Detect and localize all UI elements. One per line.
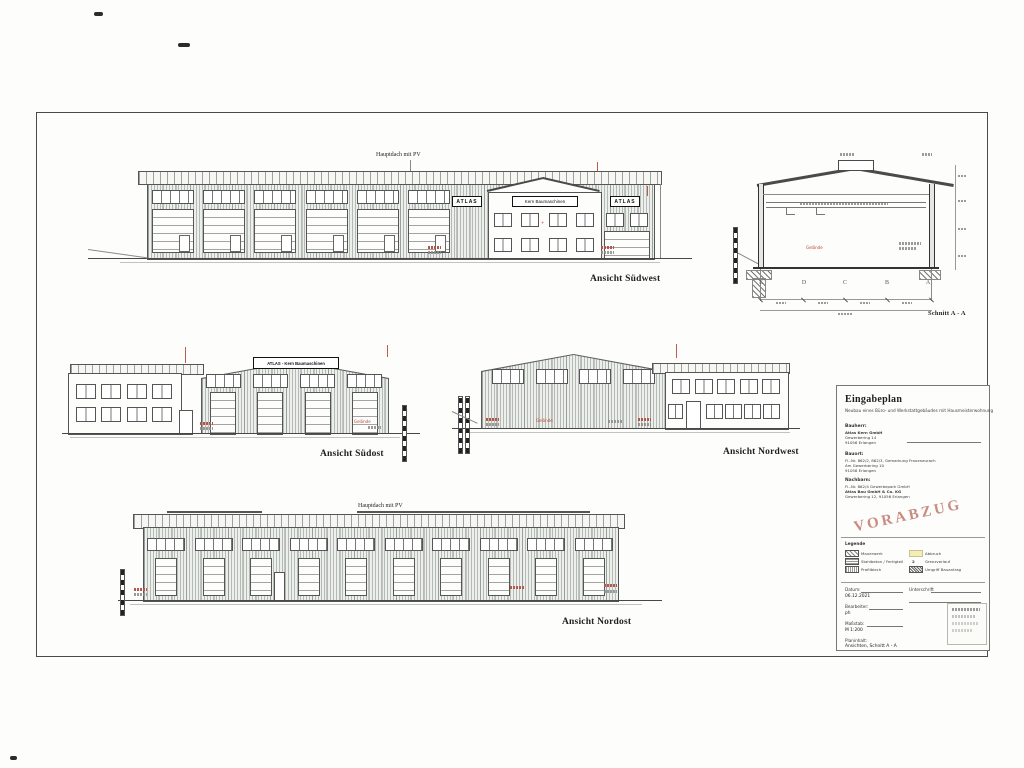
window	[127, 384, 147, 399]
ground-line-2	[470, 432, 790, 433]
hall-bay	[574, 538, 614, 596]
window	[152, 384, 172, 399]
caption-nordwest: Ansicht Nordwest	[723, 447, 799, 457]
caption-suedost: Ansicht Südost	[320, 449, 384, 459]
red-dim	[185, 347, 186, 363]
window	[706, 404, 723, 419]
ground-line	[452, 428, 800, 429]
window-band	[623, 369, 655, 384]
window-band	[432, 538, 470, 551]
legend-symbol: 2	[912, 559, 915, 564]
nachbarn-line: Gewerbering 12, 91056 Erlangen	[845, 494, 910, 499]
window-band	[242, 538, 280, 551]
window	[576, 213, 594, 227]
bauort-line: 91056 Erlangen	[845, 468, 876, 473]
caption-schnitt: Schnitt A - A	[928, 310, 966, 317]
roller-door	[357, 209, 399, 253]
window	[549, 213, 567, 227]
level-text	[638, 423, 651, 426]
legend-label: Abbruch	[925, 551, 941, 556]
red-dim	[597, 162, 598, 172]
wicket-door	[333, 235, 344, 252]
planinhalt-value: Ansichten, Schnitt A - A	[845, 644, 897, 649]
wicket-door	[281, 235, 292, 252]
dim-text	[818, 302, 828, 304]
massstab-value: M 1:200	[845, 628, 863, 633]
window	[668, 404, 683, 419]
wicket-door	[179, 235, 190, 252]
window	[740, 379, 758, 394]
roller-door	[210, 392, 236, 435]
hall-bay	[289, 538, 329, 596]
legend-label: Profilblech	[861, 567, 881, 572]
window	[717, 379, 735, 394]
level-text	[486, 423, 499, 426]
hall-bay	[306, 190, 348, 253]
window-band	[203, 190, 245, 204]
roof-band	[138, 171, 662, 185]
hall-bay	[384, 538, 424, 596]
red-level-mark	[638, 418, 651, 421]
window	[744, 404, 761, 419]
legend-swatch-mauerwerk	[845, 550, 859, 557]
red-level-mark	[428, 246, 441, 249]
level-text	[899, 247, 917, 250]
dim-text	[838, 313, 852, 315]
nachbarn-label: Nachbarn:	[845, 478, 871, 483]
office-window-row	[76, 384, 172, 399]
level-text	[200, 427, 213, 430]
dim-text	[860, 302, 870, 304]
legend-swatch-stahlbeton	[845, 558, 859, 565]
level-text	[604, 590, 617, 593]
plan-subtitle: Neubau eines Büro- und Werkstattgebäudes…	[845, 408, 993, 413]
grid-letter: A	[922, 280, 934, 286]
pedestrian-door	[274, 572, 285, 602]
bearbeiter-label: Bearbeiter:	[845, 604, 868, 609]
door-row	[206, 392, 382, 435]
bearbeiter-value: ph	[845, 611, 851, 616]
scan-speck	[10, 756, 17, 760]
canopy-post	[660, 184, 661, 258]
legend-label: Grenzverlauf	[925, 559, 950, 564]
wall-left	[758, 184, 764, 268]
window-band	[290, 538, 328, 551]
window-band	[195, 538, 233, 551]
leader-line	[410, 160, 411, 171]
roof-label: Hauptdach mit PV	[358, 503, 403, 509]
window	[763, 404, 780, 419]
boundary-pole	[465, 396, 470, 454]
window	[521, 213, 539, 227]
window-band-row	[492, 369, 655, 384]
office-window-row	[672, 379, 780, 394]
massstab-label: Maßstab:	[845, 621, 864, 626]
level-text	[368, 426, 381, 429]
bauherr-line: 91056 Erlangen	[845, 440, 876, 445]
bay-row	[146, 538, 614, 596]
roller-door	[254, 209, 296, 253]
legend-label: Stahlbeton / Fertigteil	[861, 559, 903, 564]
roller-door	[250, 558, 272, 596]
window-band	[480, 538, 518, 551]
ridge-level	[840, 153, 854, 156]
divider	[841, 537, 985, 538]
caption-suedwest: Ansicht Südwest	[590, 274, 660, 284]
roller-door	[306, 209, 348, 253]
office-wall	[68, 373, 182, 435]
red-level-mark	[604, 584, 617, 587]
pv-strip	[167, 511, 262, 513]
bauherr-label: Bauherr:	[845, 424, 867, 429]
ground-line	[88, 258, 692, 259]
window	[725, 404, 742, 419]
roller-door	[155, 558, 177, 596]
boundary-pole	[733, 227, 738, 284]
roller-door	[305, 392, 331, 435]
window-band	[408, 190, 450, 204]
red-level-mark	[486, 418, 499, 421]
ground-line-2	[70, 437, 400, 438]
window-band	[306, 190, 348, 204]
hall-bay	[152, 190, 194, 253]
entrance-door	[686, 401, 701, 430]
sectional-door	[604, 231, 650, 259]
window-band	[206, 374, 241, 388]
elevation-suedwest: Hauptdach mit PV Kern Baumaschinen + ATL	[0, 0, 46, 28]
window-band	[152, 190, 194, 204]
legend-swatch-abbruch	[909, 550, 923, 557]
boundary-pole	[402, 405, 407, 462]
foundation-hatch	[919, 270, 941, 280]
red-level-mark	[200, 422, 213, 425]
roller-door	[535, 558, 557, 596]
crane-hook	[786, 207, 795, 215]
dim-text	[958, 200, 966, 202]
architect-stamp	[947, 603, 987, 645]
level-text	[899, 242, 921, 245]
wall-right	[929, 184, 935, 268]
roller-door	[257, 392, 283, 435]
wicket-door	[384, 235, 395, 252]
scan-speck	[178, 43, 190, 47]
window	[494, 238, 512, 252]
window	[576, 238, 594, 252]
window	[152, 407, 172, 422]
grid-letter: C	[839, 280, 851, 286]
planinhalt-label: Planinhalt:	[845, 638, 867, 643]
grid-letter: D	[798, 280, 810, 286]
dim-text	[958, 228, 966, 230]
roller-door	[393, 558, 415, 596]
office-window-row	[706, 404, 780, 419]
dim-text	[958, 255, 966, 257]
tie-line	[763, 194, 929, 195]
legend-label: Umgriff Bauantrag	[925, 567, 961, 572]
datum-label: Datum:	[845, 587, 861, 592]
field-line	[867, 626, 903, 627]
wicket-door	[435, 235, 446, 252]
window	[494, 213, 512, 227]
window-band	[253, 374, 288, 388]
dim-text	[958, 175, 966, 177]
hall-bay	[357, 190, 399, 253]
scan-speck	[94, 12, 103, 16]
legend-swatch-umgriff	[909, 566, 923, 573]
level-text	[134, 593, 147, 596]
legend-swatch-profilblech	[845, 566, 859, 573]
hall-bay	[408, 190, 450, 253]
red-dim	[387, 345, 388, 357]
window-band	[536, 369, 568, 384]
level-text	[601, 251, 614, 254]
hall-bay	[203, 190, 245, 253]
office-window-row	[494, 238, 594, 252]
wicket-door	[230, 235, 241, 252]
boundary-pole	[458, 396, 463, 454]
beam-text	[800, 203, 888, 205]
title-block: Eingabeplan Neubau eines Büro- und Werks…	[836, 385, 990, 651]
pv-strip	[357, 511, 590, 513]
ground-line	[62, 433, 420, 434]
eave-level	[922, 153, 932, 156]
window	[521, 238, 539, 252]
floor-slab	[753, 267, 939, 269]
roller-door	[583, 558, 605, 596]
divider	[841, 582, 985, 583]
window-band-row	[206, 374, 382, 388]
plan-title: Eingabeplan	[845, 394, 902, 405]
atlas-sign: ATLAS	[610, 196, 640, 207]
red-level-mark	[510, 586, 524, 589]
gelaende-label: Gelände	[806, 246, 823, 250]
window-band	[300, 374, 335, 388]
window	[76, 384, 96, 399]
window-band	[385, 538, 423, 551]
window-band	[527, 538, 565, 551]
dim-text	[902, 302, 912, 304]
kern-sign: Kern Baumaschinen	[512, 196, 578, 207]
legend-label: Mauerwerk	[861, 551, 883, 556]
hall-bay	[431, 538, 471, 596]
window	[127, 407, 147, 422]
window	[762, 379, 780, 394]
atlas-sign: ATLAS	[452, 196, 482, 207]
datum-value: 06.12.2021	[845, 594, 870, 599]
field-line	[861, 592, 903, 593]
roller-door	[203, 209, 245, 253]
window	[549, 238, 567, 252]
red-dim	[647, 186, 648, 196]
ground-line-2	[130, 604, 642, 605]
signature-line	[907, 442, 981, 443]
ground-line	[118, 600, 662, 601]
window-band	[575, 538, 613, 551]
red-dim	[676, 344, 677, 358]
dim-line-total	[760, 310, 932, 311]
office-window-row	[76, 407, 172, 422]
ridge-skylight	[838, 160, 874, 171]
signature-line	[931, 592, 981, 593]
window	[76, 407, 96, 422]
window-band	[492, 369, 524, 384]
grid-letter: E	[755, 280, 767, 286]
vorabzug-stamp: VORABZUG	[852, 497, 963, 537]
crane-hook	[816, 207, 825, 215]
red-level-mark	[601, 246, 614, 249]
side-door	[179, 410, 193, 435]
roller-door	[298, 558, 320, 596]
ground-line-2	[120, 262, 660, 263]
legende-label: Legende	[845, 541, 865, 546]
window	[695, 379, 713, 394]
level-text	[608, 420, 622, 423]
gelaende-label: Gelände	[354, 420, 371, 424]
dim-text	[776, 302, 786, 304]
window-band	[147, 538, 185, 551]
roller-door	[203, 558, 225, 596]
gelaende-label: Gelände	[536, 419, 553, 423]
window	[606, 213, 624, 227]
window	[630, 213, 648, 227]
grid-letter: B	[881, 280, 893, 286]
hall-bay	[194, 538, 234, 596]
hall-bay	[526, 538, 566, 596]
window	[672, 379, 690, 394]
window-band	[337, 538, 375, 551]
bay-row	[152, 190, 450, 253]
window-band	[357, 190, 399, 204]
red-level-mark	[134, 588, 147, 591]
window	[101, 384, 121, 399]
bauort-label: Bauort:	[845, 452, 863, 457]
window	[101, 407, 121, 422]
boundary-pole	[120, 569, 125, 616]
roller-door	[440, 558, 462, 596]
caption-nordost: Ansicht Nordost	[562, 617, 631, 627]
roller-door	[488, 558, 510, 596]
level-text	[428, 251, 441, 254]
field-line	[869, 609, 903, 610]
roller-door	[345, 558, 367, 596]
hall-bay	[254, 190, 296, 253]
vert-dim-line	[955, 165, 956, 270]
atlas-kern-sign: ATLAS - Kern Baumaschinen	[253, 357, 339, 369]
window-band	[347, 374, 382, 388]
hall-bay	[336, 538, 376, 596]
window-band	[579, 369, 611, 384]
roof-label: Hauptdach mit PV	[376, 152, 421, 158]
window-band	[254, 190, 296, 204]
hall-bay	[146, 538, 186, 596]
roller-door	[152, 209, 194, 253]
red-mark: +	[541, 221, 544, 225]
